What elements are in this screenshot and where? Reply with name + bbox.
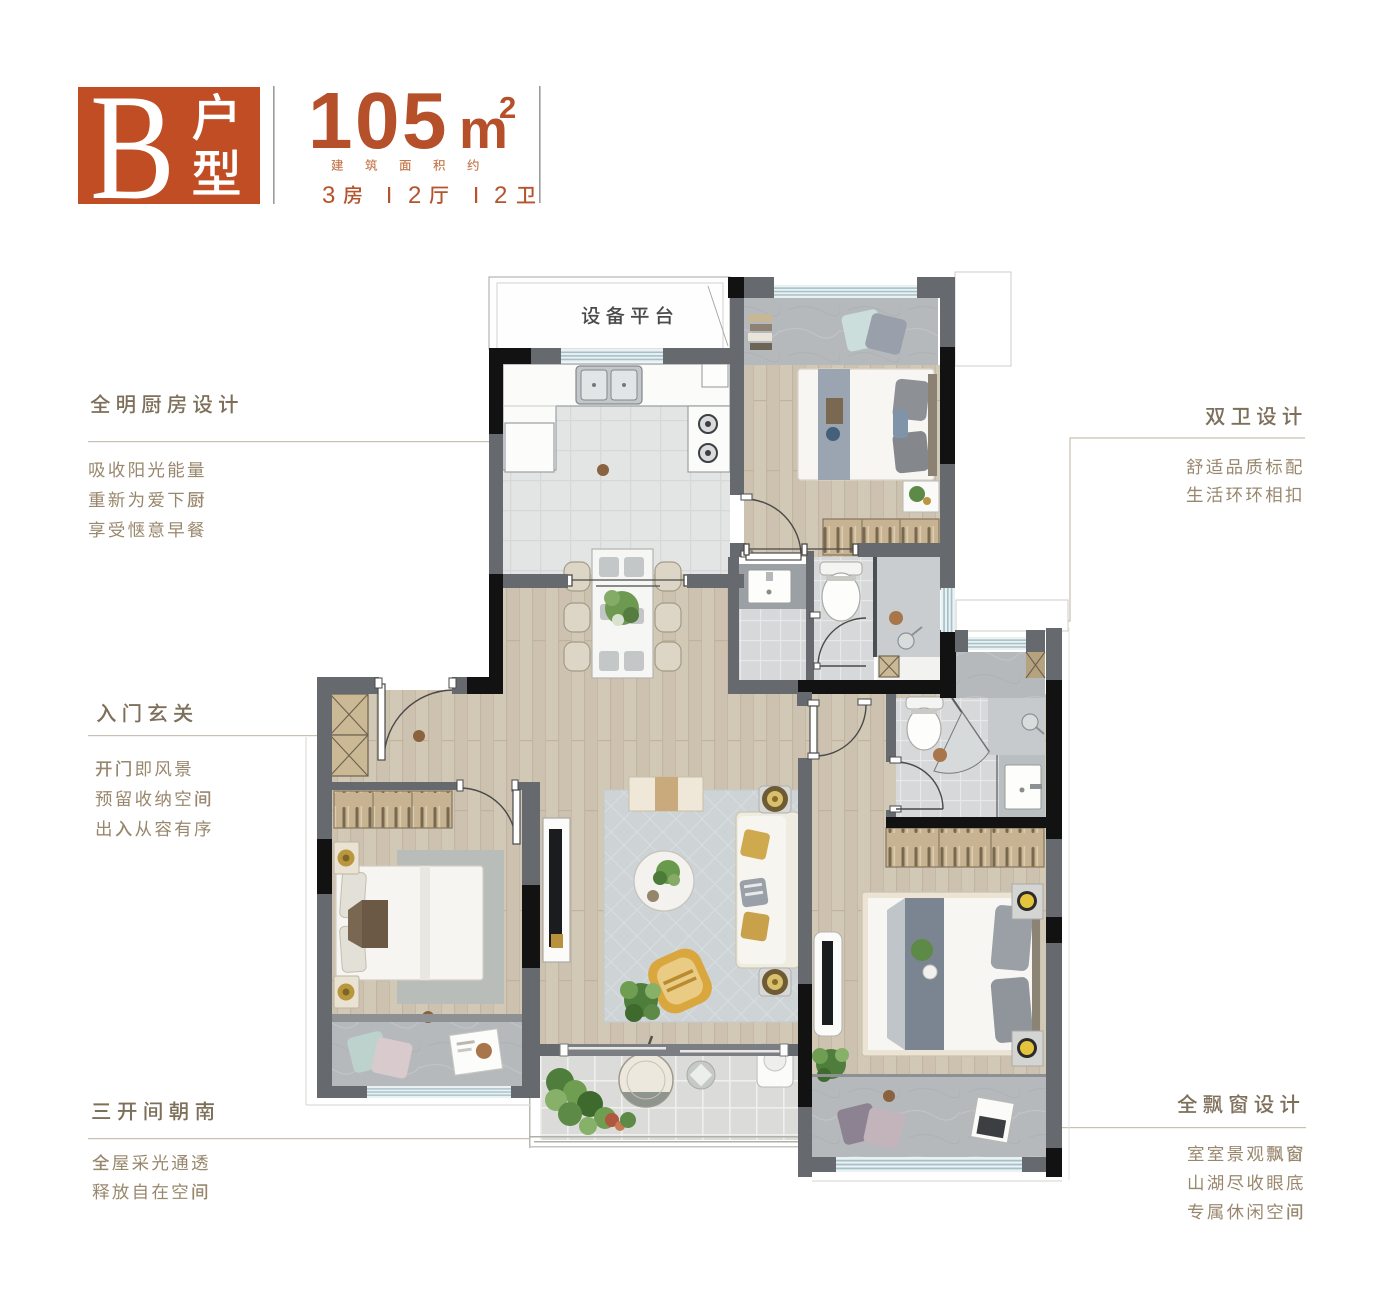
svg-text:2: 2 xyxy=(499,90,516,125)
svg-text:105: 105 xyxy=(308,76,449,165)
svg-text:2: 2 xyxy=(494,182,507,209)
svg-text:3: 3 xyxy=(322,182,335,209)
svg-text:2: 2 xyxy=(408,182,421,209)
svg-text:B: B xyxy=(90,64,175,232)
